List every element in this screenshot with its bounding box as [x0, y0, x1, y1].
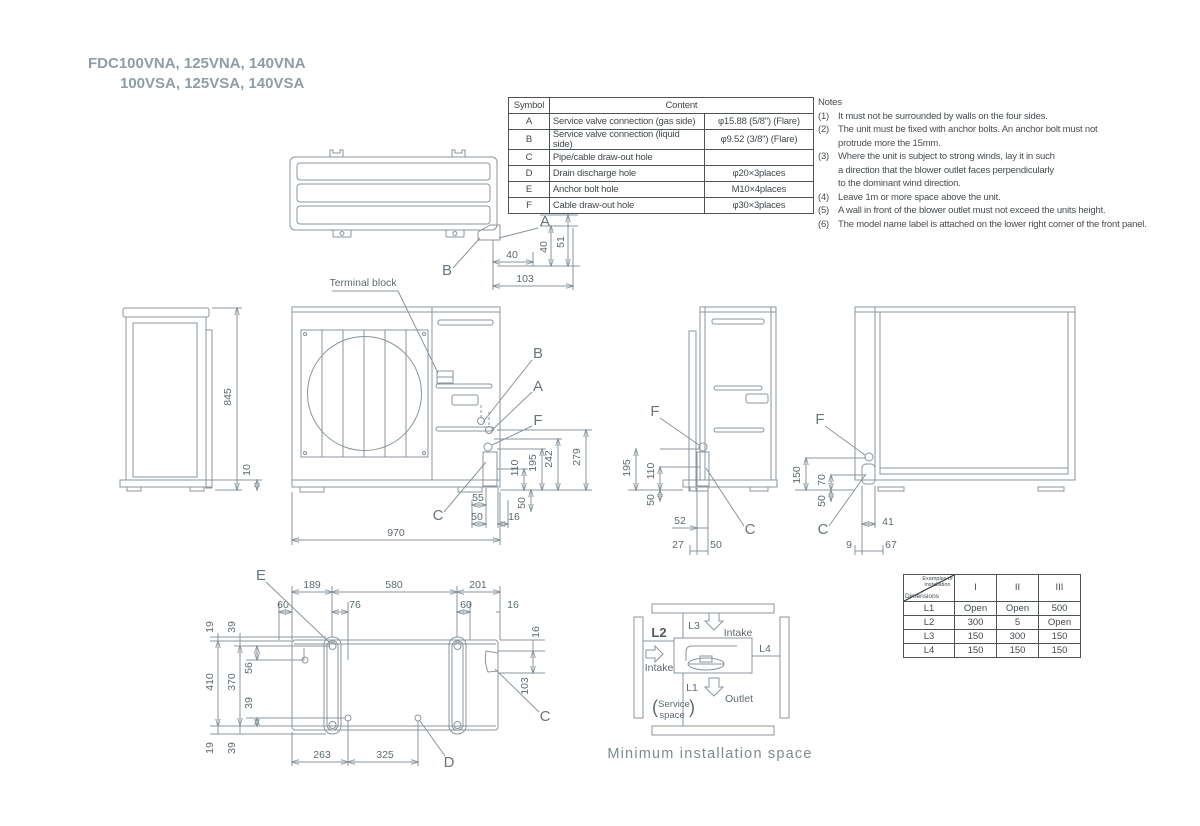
dim-195: 195 [621, 459, 633, 477]
symbol-a-label: A [533, 378, 543, 395]
dim-110: 110 [645, 462, 657, 479]
dim-580: 580 [385, 579, 403, 591]
diagonal-header-cell: Examples of installation Dimensions [904, 575, 954, 601]
dim-19-top: 19 [204, 621, 216, 633]
cable-hole [484, 443, 492, 451]
terminal-block-label: Terminal block [329, 277, 397, 289]
dim-40-horizontal: 40 [506, 249, 518, 261]
table-row: L4 150 150 150 [904, 644, 1081, 658]
dim-50-vertical: 50 [516, 497, 528, 509]
spec-cell: φ15.88 (5/8") (Flare) [704, 114, 813, 130]
note-number: (4) [818, 191, 838, 205]
table-row: L3 150 300 150 [904, 630, 1081, 644]
symbol-table: Symbol Content A Service valve connectio… [508, 97, 814, 214]
l1-label: L1 [686, 682, 698, 694]
draw-out-hole [485, 651, 498, 672]
value-cell: Open [955, 602, 997, 616]
outlet-label: Outlet [725, 693, 753, 705]
notes-block: Notes (1)It must not be surrounded by wa… [818, 96, 1173, 231]
symbol-cell: F [509, 198, 550, 214]
hanger-tab [452, 150, 465, 157]
symbol-a-label: A [540, 213, 550, 230]
right-wall [780, 617, 789, 718]
value-cell: Open [997, 602, 1039, 616]
table-row: L2 300 5 Open [904, 616, 1081, 630]
note-number: (6) [818, 218, 838, 232]
content-cell: Pipe/cable draw-out hole [549, 150, 704, 166]
cable-hole [865, 453, 873, 461]
value-cell: 150 [1039, 630, 1081, 644]
dim-16-right: 16 [530, 626, 542, 638]
spec-cell: φ9.52 (3/8") (Flare) [704, 130, 813, 150]
left-side-view: 845 10 [120, 308, 262, 491]
table-row: B Service valve connection (liquid side)… [509, 130, 814, 150]
nameplate [452, 395, 478, 405]
row-header: L3 [904, 630, 955, 644]
note-number: (2) [818, 123, 838, 150]
installation-table: Examples of installation Dimensions I II… [903, 574, 1081, 658]
service-paren-close: ) [689, 697, 695, 717]
notes-heading: Notes [818, 96, 1173, 110]
value-cell: 300 [955, 616, 997, 630]
dim-67: 67 [885, 539, 897, 551]
table-row: E Anchor bolt hole M10×4places [509, 182, 814, 198]
content-cell: Cable draw-out hole [549, 198, 704, 214]
value-cell: 500 [1039, 602, 1081, 616]
col-header-2: II [997, 575, 1039, 602]
intake-arrow-top [705, 613, 723, 630]
note-item: (1)It must not be surrounded by walls on… [818, 110, 1173, 124]
note-text: Leave 1m or more space above the unit. [838, 191, 1000, 205]
bottom-view: 189 580 201 60 76 60 16 19 39 410 370 56 [204, 567, 551, 771]
examples-header: Examples of installation [921, 576, 954, 589]
outlet-arrow [705, 678, 723, 696]
symbol-f-label: F [650, 403, 659, 420]
symbol-cell: C [509, 150, 550, 166]
dim-195: 195 [527, 454, 539, 472]
content-cell: Drain discharge hole [549, 166, 704, 182]
row-header: L4 [904, 644, 955, 658]
dim-19-bottom: 19 [204, 742, 216, 754]
dim-263: 263 [313, 749, 331, 761]
dim-50-vertical: 50 [816, 495, 828, 507]
model-line-1: FDC100VNA, 125VNA, 140VNA [88, 54, 306, 74]
dim-50-vertical: 50 [645, 494, 657, 506]
service-space-line2: space [659, 710, 684, 721]
intake-left-label: Intake [645, 662, 674, 674]
spec-cell [704, 150, 813, 166]
symbol-c-label: C [745, 521, 756, 538]
dim-60-left: 60 [277, 599, 289, 611]
dim-55: 55 [472, 492, 484, 504]
dim-70: 70 [816, 474, 828, 486]
symbol-f-label: F [815, 411, 824, 428]
note-text: Where the unit is subject to strong wind… [838, 150, 1055, 191]
note-item: (2)The unit must be fixed with anchor bo… [818, 123, 1173, 150]
drawing-sheet: 40 103 40 51 A B 845 10 [0, 0, 1200, 826]
drain-hole [415, 715, 421, 721]
dim-201: 201 [469, 579, 487, 591]
l2-label: L2 [651, 625, 666, 640]
dim-52: 52 [674, 515, 686, 527]
service-paren-open: ( [652, 697, 658, 717]
symbol-c-label: C [540, 708, 551, 725]
dim-150: 150 [791, 466, 803, 484]
table-row: C Pipe/cable draw-out hole [509, 150, 814, 166]
spec-cell: M10×4places [704, 182, 813, 198]
value-cell: 150 [1039, 644, 1081, 658]
hanger-tab [330, 150, 343, 157]
l4-label: L4 [759, 643, 771, 655]
symbol-col-header: Symbol [509, 98, 550, 114]
symbol-cell: D [509, 166, 550, 182]
symbol-c-label: C [433, 507, 444, 524]
dim-51: 51 [555, 236, 567, 248]
spec-cell: φ30×3places [704, 198, 813, 214]
symbol-b-label: B [533, 345, 543, 362]
note-item: (6)The model name label is attached on t… [818, 218, 1173, 232]
note-number: (1) [818, 110, 838, 124]
dim-39-top: 39 [226, 621, 238, 633]
col-header-3: III [1039, 575, 1081, 602]
table-row: L1 Open Open 500 [904, 602, 1081, 616]
note-number: (5) [818, 204, 838, 218]
dim-76: 76 [349, 599, 361, 611]
dim-60-right: 60 [460, 599, 472, 611]
value-cell: Open [1039, 616, 1081, 630]
dim-410: 410 [204, 673, 216, 691]
dim-39-bottom: 39 [226, 742, 238, 754]
dim-50-horizontal: 50 [710, 539, 722, 551]
pipe-outlet-box [483, 452, 497, 486]
content-cell: Service valve connection (gas side) [549, 114, 704, 130]
symbol-cell: A [509, 114, 550, 130]
note-item: (3)Where the unit is subject to strong w… [818, 150, 1173, 191]
symbol-cell: B [509, 130, 550, 150]
page-title: FDC100VNA, 125VNA, 140VNA 100VSA, 125VSA… [88, 54, 306, 94]
table-row: A Service valve connection (gas side) φ1… [509, 114, 814, 130]
dim-970: 970 [387, 527, 405, 539]
dim-279: 279 [571, 448, 583, 466]
coil-strip [206, 330, 212, 488]
drain-hole [345, 715, 351, 721]
col-header-1: I [955, 575, 997, 602]
dimensions-header: Dimensions [905, 594, 939, 601]
dim-370: 370 [226, 673, 238, 691]
table-row: F Cable draw-out hole φ30×3places [509, 198, 814, 214]
content-col-header: Content [549, 98, 813, 114]
front-view: Terminal block B A F C 110 195 242 279 5… [292, 277, 592, 545]
value-cell: 5 [997, 616, 1039, 630]
row-header: L2 [904, 616, 955, 630]
symbol-b-label: B [442, 262, 452, 279]
spec-cell: φ20×3places [704, 166, 813, 182]
note-text: It must not be surrounded by walls on th… [838, 110, 1048, 124]
content-cell: Service valve connection (liquid side) [549, 130, 704, 150]
symbol-d-label: D [444, 754, 455, 771]
value-cell: 150 [955, 630, 997, 644]
note-text: The unit must be fixed with anchor bolts… [838, 123, 1097, 150]
note-item: (5)A wall in front of the blower outlet … [818, 204, 1173, 218]
dim-110: 110 [509, 459, 521, 476]
l3-label: L3 [688, 620, 700, 632]
value-cell: 300 [997, 630, 1039, 644]
top-wall [652, 604, 774, 613]
dim-41: 41 [882, 516, 894, 528]
dim-27: 27 [672, 539, 684, 551]
left-wall [634, 617, 643, 718]
note-item: (4)Leave 1m or more space above the unit… [818, 191, 1173, 205]
anchor-hole [329, 722, 336, 729]
back-view: 150 70 50 41 9 67 F C [791, 307, 1075, 555]
nameplate [746, 394, 768, 403]
note-text: A wall in front of the blower outlet mus… [838, 204, 1105, 218]
dim-325: 325 [376, 749, 394, 761]
dim-103: 103 [519, 677, 531, 695]
anchor-hole [454, 722, 461, 729]
dim-16-top: 16 [507, 599, 519, 611]
value-cell: 150 [955, 644, 997, 658]
content-cell: Anchor bolt hole [549, 182, 704, 198]
dim-56: 56 [243, 662, 255, 674]
right-side-view: 195 110 50 52 27 50 F C [621, 307, 777, 555]
table-row: D Drain discharge hole φ20×3places [509, 166, 814, 182]
dim-40-vertical: 40 [538, 241, 550, 253]
note-text: The model name label is attached on the … [838, 218, 1147, 232]
heat-exchanger-grid [880, 312, 1068, 474]
symbol-cell: E [509, 182, 550, 198]
dim-103: 103 [516, 273, 534, 285]
row-header: L1 [904, 602, 955, 616]
dim-50-horizontal: 50 [471, 511, 483, 523]
note-number: (3) [818, 150, 838, 191]
symbol-f-label: F [533, 412, 542, 429]
dim-9: 9 [846, 539, 852, 551]
value-cell: 150 [997, 644, 1039, 658]
service-space-line1: Service [658, 699, 690, 710]
symbol-c-label: C [818, 521, 829, 538]
dim-16: 16 [508, 511, 520, 523]
dim-845: 845 [222, 388, 234, 406]
dim-189: 189 [303, 579, 321, 591]
dim-242: 242 [543, 450, 555, 468]
intake-arrow-left [646, 646, 663, 662]
pipe-outlet-box [862, 464, 875, 484]
dim-39-mid: 39 [243, 697, 255, 709]
bottom-wall [652, 726, 774, 735]
installation-space-diagram: L3 Intake L2 Intake L4 L1 Outlet ( Servi… [607, 604, 812, 762]
installation-space-caption: Minimum installation space [607, 746, 812, 762]
symbol-e-label: E [256, 567, 266, 584]
model-line-2: 100VSA, 125VSA, 140VSA [88, 74, 306, 94]
intake-top-label: Intake [724, 627, 753, 639]
dim-10: 10 [241, 464, 253, 476]
